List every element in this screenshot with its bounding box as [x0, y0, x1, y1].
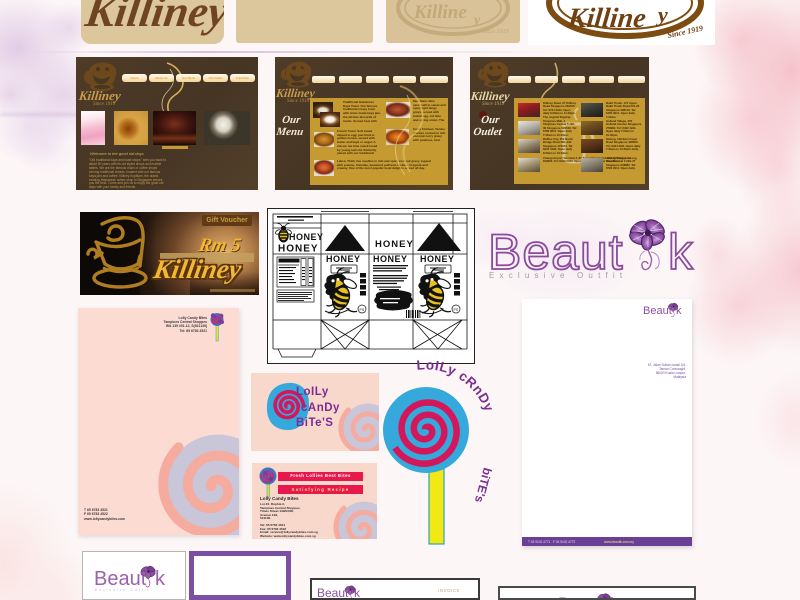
- svg-text:PS: PS: [454, 308, 459, 312]
- svg-text:HONEY: HONEY: [373, 254, 408, 264]
- svg-text:Killine: Killine: [413, 2, 467, 23]
- svg-text:Exclusive Outfit: Exclusive Outfit: [95, 588, 150, 592]
- svg-text:Killine: Killine: [565, 3, 647, 34]
- svg-text:k: k: [155, 568, 166, 590]
- svg-text:HONEY: HONEY: [375, 239, 414, 250]
- svg-text:Menu: Menu: [275, 126, 304, 138]
- svg-text:Our: Our: [281, 114, 302, 126]
- svg-text:Killiney: Killiney: [470, 89, 511, 103]
- svg-text:biTE's: biTE's: [472, 466, 495, 504]
- svg-text:Since 1919: Since 1919: [287, 99, 310, 104]
- svg-text:Since 1919: Since 1919: [482, 102, 505, 107]
- svg-text:Beaut: Beaut: [643, 305, 672, 317]
- svg-text:Beaut: Beaut: [94, 568, 147, 590]
- svg-text:Outlet: Outlet: [473, 126, 504, 138]
- svg-text:y: y: [472, 13, 481, 28]
- svg-text:HONEY: HONEY: [278, 244, 319, 255]
- svg-text:Our: Our: [480, 114, 501, 126]
- svg-text:Killiney: Killiney: [77, 88, 122, 103]
- svg-text:k: k: [668, 224, 694, 280]
- svg-text:PS: PS: [360, 308, 365, 312]
- svg-text:HONEY: HONEY: [326, 254, 361, 264]
- svg-text:Exclusive Outfit: Exclusive Outfit: [489, 271, 627, 280]
- svg-text:k: k: [610, 594, 619, 600]
- svg-text:Since 1919: Since 1919: [482, 29, 509, 35]
- svg-text:Since 1919: Since 1919: [93, 102, 116, 107]
- svg-text:y: y: [655, 2, 668, 27]
- svg-text:HONEY: HONEY: [289, 232, 324, 242]
- svg-text:Beaut: Beaut: [558, 594, 603, 600]
- svg-text:HONEY: HONEY: [420, 254, 455, 264]
